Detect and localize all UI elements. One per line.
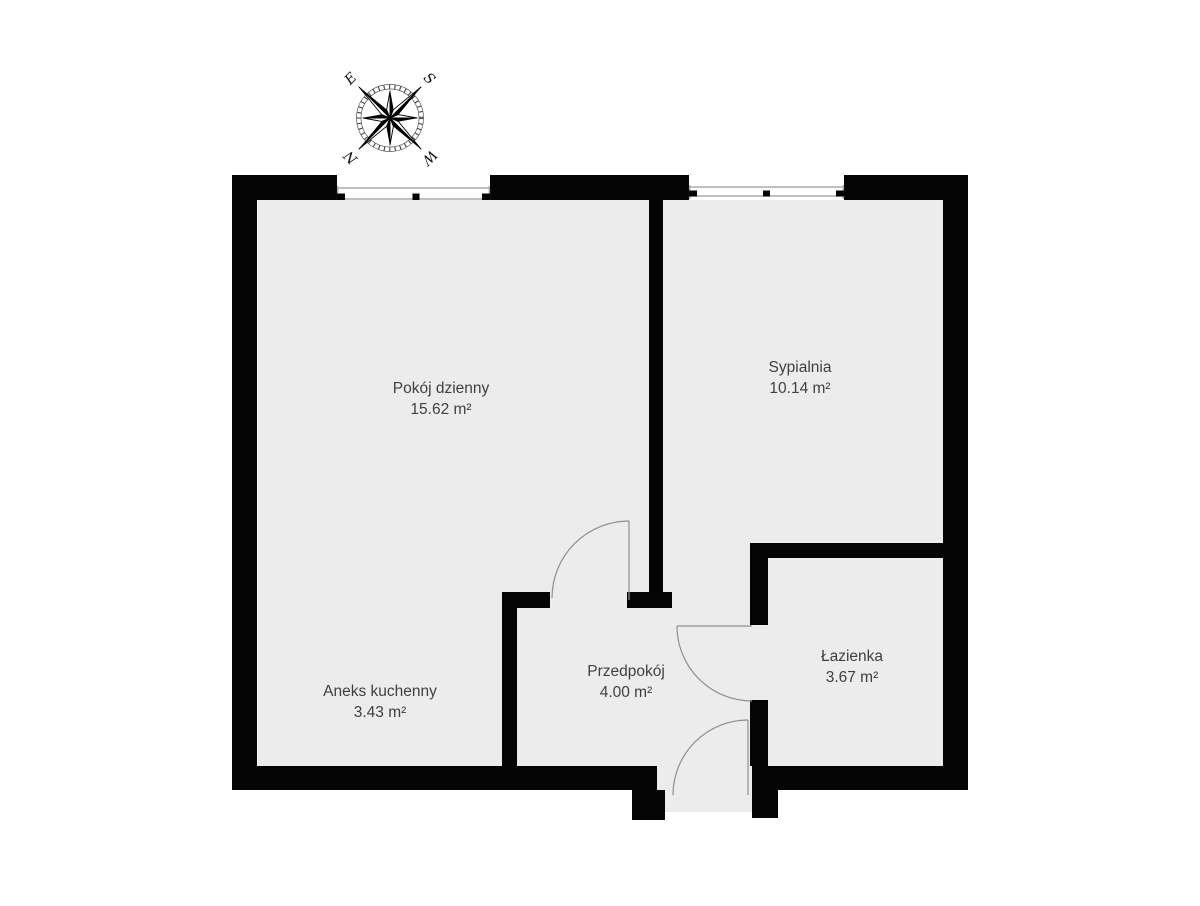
wall-bath-top <box>750 543 944 558</box>
wall-bottom-left <box>232 766 657 790</box>
room-name: Sypialnia <box>769 357 832 378</box>
room-area: 4.00 m² <box>587 682 665 703</box>
room-name: Aneks kuchenny <box>323 681 437 702</box>
entrance-stub-right <box>752 790 778 818</box>
floor-plan-drawing: S W N E <box>0 0 1200 906</box>
room-label-hallway: Przedpokój 4.00 m² <box>587 661 665 703</box>
wall-bath-left-lower <box>750 700 768 766</box>
compass-star-black <box>359 87 421 149</box>
wall-living-bedroom <box>649 200 663 592</box>
window-living-icon <box>337 175 490 200</box>
room-area: 10.14 m² <box>769 378 832 399</box>
window-mullion <box>836 191 844 197</box>
window-mullion <box>482 194 490 201</box>
room-label-bedroom: Sypialnia 10.14 m² <box>769 357 832 399</box>
entrance-stub-left <box>632 790 665 820</box>
room-area: 15.62 m² <box>393 399 490 420</box>
room-area: 3.67 m² <box>821 667 883 688</box>
wall-hall-top-stub <box>502 592 550 608</box>
room-label-living: Pokój dzienny 15.62 m² <box>393 378 490 420</box>
wall-bottom-right <box>752 766 968 790</box>
room-name: Łazienka <box>821 646 883 667</box>
compass-south-label: S <box>420 70 438 88</box>
window-mullion <box>763 191 770 197</box>
room-area: 3.43 m² <box>323 702 437 723</box>
entrance-vestibule-floor <box>657 768 752 812</box>
wall-left <box>232 200 257 790</box>
wall-right <box>943 200 968 790</box>
window-mullion <box>689 191 697 197</box>
window-bedroom-icon <box>689 175 844 200</box>
room-name: Pokój dzienny <box>393 378 490 399</box>
window-mullion <box>337 194 345 201</box>
room-label-bathroom: Łazienka 3.67 m² <box>821 646 883 688</box>
wall-hall-left <box>502 608 517 766</box>
compass-east-label: E <box>341 70 360 89</box>
wall-bath-left-upper <box>750 543 768 625</box>
room-name: Przedpokój <box>587 661 665 682</box>
room-label-kitchenette: Aneks kuchenny 3.43 m² <box>323 681 437 723</box>
compass-west-label: W <box>417 146 440 169</box>
wall-living-bedroom-foot <box>627 592 672 608</box>
compass-north-label: N <box>340 146 361 167</box>
compass-rose-icon: S W N E <box>340 70 439 169</box>
window-mullion <box>413 194 420 201</box>
floor-plan-page: S W N E Pokój dzienny 15.62 m² Sypialnia… <box>0 0 1200 906</box>
